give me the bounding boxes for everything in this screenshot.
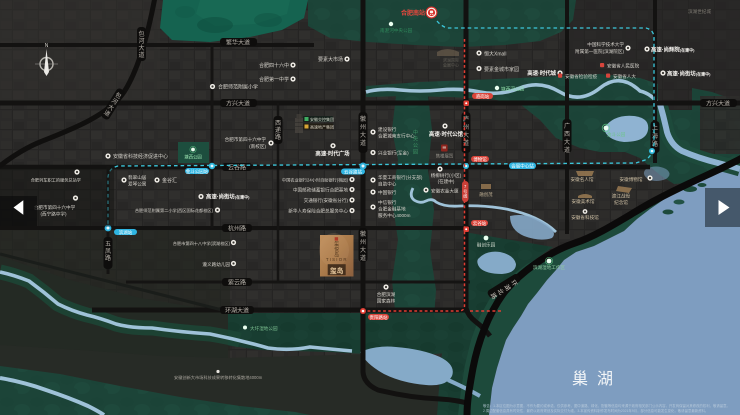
svg-text:售楼展贸: 售楼展贸: [436, 152, 454, 159]
svg-text:骆岗站: 骆岗站: [476, 93, 490, 100]
svg-text:合肥南站: 合肥南站: [401, 9, 425, 17]
svg-text:安徽省检验检疫: 安徽省检验检疫: [565, 73, 598, 80]
svg-text:国家森林: 国家森林: [377, 298, 396, 305]
svg-text:方兴大道: 方兴大道: [226, 100, 250, 108]
svg-text:塘西河公园: 塘西河公园: [501, 86, 524, 93]
svg-text:中国农业银行24小时自助银行(桃园): 中国农业银行24小时自助银行(桃园): [282, 177, 349, 184]
svg-text:金斗公园站: 金斗公园站: [186, 168, 209, 175]
svg-text:杭州路: 杭州路: [228, 225, 246, 233]
svg-text:环湖大道: 环湖大道: [225, 307, 249, 315]
svg-text:合肥列车职工的服务总站学: 合肥列车职工的服务总站学: [31, 177, 81, 184]
svg-text:南淝河中央公园: 南淝河中央公园: [380, 27, 413, 34]
svg-text:滨湖湿地工作区: 滨湖湿地工作区: [533, 264, 566, 271]
svg-text:会展中心站: 会展中心站: [511, 163, 534, 170]
svg-text:遵义路幼儿园: 遵义路幼儿园: [202, 261, 230, 268]
svg-text:玺悦岛: 玺悦岛: [334, 241, 339, 259]
svg-text:西递路: 西递路: [275, 120, 281, 141]
svg-text:中央公园: 中央公园: [413, 129, 418, 156]
svg-text:合肥市第四十八中学(滨湖校区): 合肥市第四十八中学(滨湖校区): [173, 240, 231, 247]
svg-text:附属第一医院(滨湖院区): 附属第一医院(滨湖院区): [575, 48, 624, 55]
svg-text:塘西公园: 塘西公园: [184, 154, 202, 161]
svg-text:安徽省人民医院: 安徽省人民医院: [607, 63, 640, 70]
svg-text:云谷路站: 云谷路站: [344, 168, 362, 175]
svg-text:合肥第一中学: 合肥第一中学: [259, 76, 289, 83]
svg-text:翡翠山居: 翡翠山居: [128, 174, 147, 181]
svg-text:五凤路: 五凤路: [105, 241, 111, 262]
svg-text:中信银行: 中信银行: [378, 199, 397, 206]
svg-text:渡江战役: 渡江战役: [612, 193, 631, 200]
svg-text:博物馆: 博物馆: [473, 156, 487, 163]
svg-text:合肥四十六中: 合肥四十六中: [259, 62, 289, 69]
svg-text:高速·尚街坊(在建中): 高速·尚街坊(在建中): [206, 193, 250, 201]
svg-text:中国科学技术大学: 中国科学技术大学: [587, 41, 624, 48]
svg-text:安徽名人馆: 安徽名人馆: [571, 176, 594, 183]
svg-text:安徽省科技馆: 安徽省科技馆: [571, 214, 599, 221]
svg-text:金谷汇: 金谷汇: [162, 177, 177, 184]
svg-text:安徽农金大厦: 安徽农金大厦: [431, 188, 459, 195]
svg-text:纪念馆: 纪念馆: [614, 199, 628, 206]
svg-text:中国邮政储蓄银行合肥基地: 中国邮政储蓄银行合肥基地: [293, 187, 349, 194]
svg-text:安徽省科技经济促进中心: 安徽省科技经济促进中心: [113, 153, 168, 160]
svg-text:高速·时代广场: 高速·时代广场: [315, 149, 350, 157]
svg-text:合肥市第四十六中学: 合肥市第四十六中学: [34, 204, 76, 211]
svg-text:上海路: 上海路: [652, 124, 658, 148]
svg-text:新华人寿保险合肥总服务中心: 新华人寿保险合肥总服务中心: [288, 208, 348, 215]
svg-text:合肥滨湖: 合肥滨湖: [377, 291, 396, 298]
svg-text:安徽美术馆: 安徽美术馆: [572, 198, 595, 205]
svg-text:恒大Xmall: 恒大Xmall: [484, 51, 507, 58]
svg-text:高速·时代城: 高速·时代城: [527, 69, 556, 77]
svg-text:高速·尚辉院(在建中): 高速·尚辉院(在建中): [651, 46, 695, 54]
svg-text:大圩湿地公园: 大圩湿地公园: [250, 325, 278, 332]
svg-text:方兴大道: 方兴大道: [706, 100, 730, 108]
svg-text:合肥师范附属小学: 合肥师范附属小学: [218, 84, 258, 91]
svg-text:玺岛: 玺岛: [330, 266, 344, 275]
svg-text:包河大道: 包河大道: [138, 30, 144, 59]
svg-text:安徽创新大市场科技成果转移转化集散地4000m: 安徽创新大市场科技成果转移转化集散地4000m: [174, 374, 263, 381]
svg-text:要素大市场: 要素大市场: [318, 56, 343, 63]
svg-text:(南校区): (南校区): [249, 143, 266, 150]
svg-text:安徽博物馆: 安徽博物馆: [620, 176, 643, 183]
svg-text:合肥金融基地: 合肥金融基地: [378, 206, 406, 213]
svg-text:紫云路: 紫云路: [228, 279, 246, 287]
svg-text:滨湖世纪城: 滨湖世纪城: [688, 8, 711, 15]
svg-text:敬告：1.本区位图为示意图，不作为要约或承诺，仅供参考。图中: 敬告：1.本区位图为示意图，不作为要约或承诺，仅供参考。图中道路、绿化、配套等信…: [483, 403, 730, 408]
svg-text:会展中心: 会展中心: [443, 62, 459, 68]
svg-text:自助中心: 自助中心: [378, 181, 397, 188]
svg-text:融创乐园: 融创乐园: [477, 242, 496, 249]
svg-text:杨柳树行(小区): 杨柳树行(小区): [431, 172, 462, 179]
svg-text:服务中心4000m: 服务中心4000m: [378, 212, 411, 219]
svg-text:要素金城市家园: 要素金城市家园: [484, 66, 519, 73]
svg-text:繁华大道: 繁华大道: [226, 39, 250, 47]
svg-text:合肥城南支行中心: 合肥城南支行中心: [378, 133, 415, 140]
svg-text:金斗公园: 金斗公园: [607, 131, 626, 138]
svg-text:兴业银行(军金): 兴业银行(军金): [378, 150, 409, 157]
svg-text:安徽省人大: 安徽省人大: [613, 73, 636, 80]
svg-text:爱琴公寓: 爱琴公寓: [128, 181, 147, 188]
svg-text:合肥师范附属第二小学(西区国际花都校区): 合肥师范附属第二小学(西区国际花都校区): [135, 207, 214, 214]
svg-text:巢湖: 巢湖: [572, 370, 622, 388]
svg-text:高速·时代公馆: 高速·时代公馆: [429, 130, 464, 138]
svg-text:建设银行: 建设银行: [378, 126, 397, 133]
svg-text:贵阳路站: 贵阳路站: [370, 314, 388, 321]
svg-text:云谷路: 云谷路: [228, 164, 246, 172]
svg-text:(在建中): (在建中): [438, 178, 455, 185]
svg-text:N: N: [45, 43, 49, 49]
svg-text:融创茂: 融创茂: [479, 191, 493, 198]
svg-text:交通银行(安徽省分行): 交通银行(安徽省分行): [304, 197, 349, 204]
svg-text:安徽交控集团: 安徽交控集团: [310, 116, 334, 122]
svg-text:中国银行: 中国银行: [378, 189, 397, 196]
svg-text:2.周边配套信息具有时效性，最终以政府规划及实际交付为准。3: 2.周边配套信息具有时效性，最终以政府规划及实际交付为准。3.本宣传资料制作发布…: [483, 408, 708, 413]
svg-text:TISIOR: TISIOR: [326, 257, 348, 262]
svg-text:高速地产集团: 高速地产集团: [310, 124, 334, 130]
svg-text:合肥市第四十六中学: 合肥市第四十六中学: [225, 136, 267, 143]
svg-text:华夏工商银行(分支部): 华夏工商银行(分支部): [378, 174, 423, 181]
svg-text:(西宁路中学): (西宁路中学): [40, 211, 66, 218]
svg-text:高速·尚街坊(在建中): 高速·尚街坊(在建中): [667, 70, 711, 78]
svg-text:滨湖站: 滨湖站: [119, 229, 133, 236]
svg-text:云谷站: 云谷站: [473, 220, 487, 227]
